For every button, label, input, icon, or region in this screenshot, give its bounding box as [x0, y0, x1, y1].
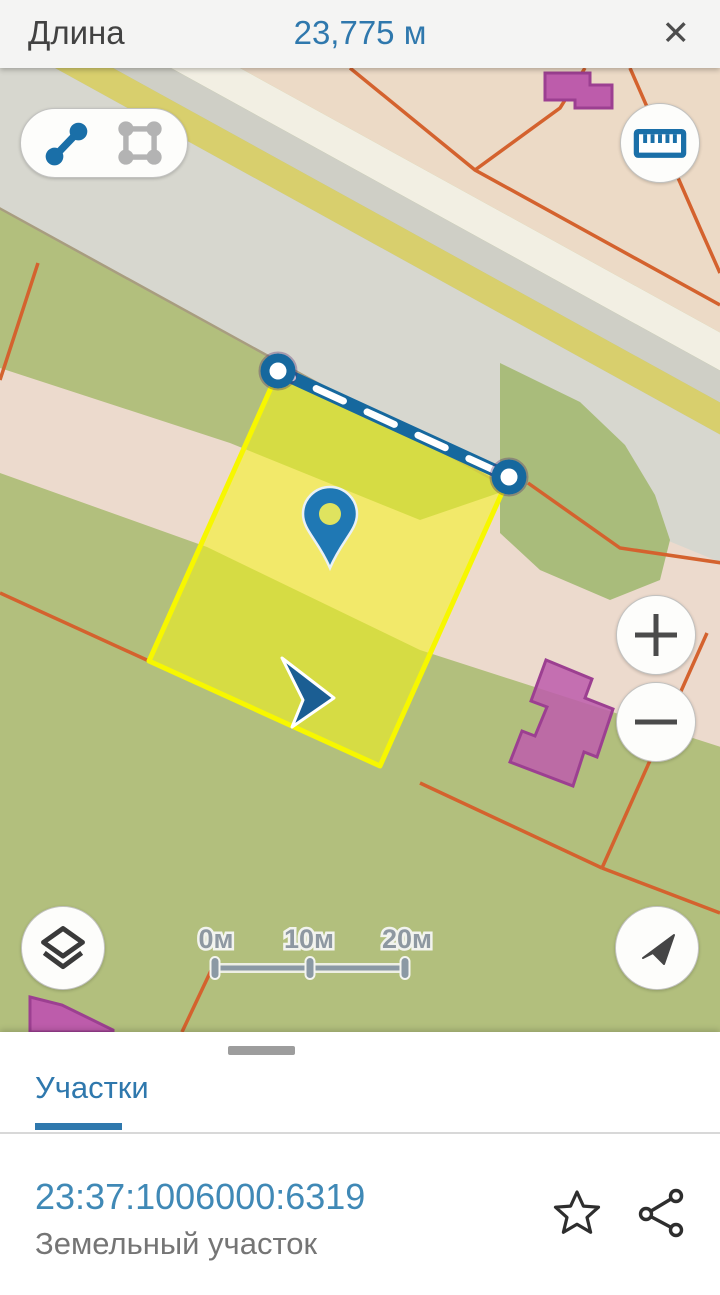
- measured-length-value: 23,775 м: [0, 14, 720, 52]
- tab-parcels[interactable]: Участки: [35, 1070, 149, 1106]
- measure-distance-icon[interactable]: [42, 118, 92, 168]
- layers-icon: [37, 922, 89, 974]
- ruler-icon: [632, 122, 688, 164]
- zoom-in-button[interactable]: [616, 595, 696, 675]
- measure-vertex-handle[interactable]: [265, 358, 291, 384]
- plus-icon: [631, 610, 681, 660]
- favorite-star-icon[interactable]: [552, 1188, 602, 1238]
- measure-area-icon[interactable]: [114, 117, 166, 169]
- layers-button[interactable]: [21, 906, 105, 990]
- parcel-cadastral-number-link[interactable]: 23:37:1006000:6319: [35, 1176, 365, 1218]
- close-icon[interactable]: ✕: [662, 16, 691, 50]
- share-icon[interactable]: [634, 1188, 686, 1238]
- divider: [0, 1132, 720, 1134]
- scale-label-0: 0м: [199, 924, 234, 954]
- navigation-arrow-icon: [631, 922, 683, 974]
- measure-app-bar: Длина 23,775 м ✕: [0, 0, 720, 68]
- compass-button[interactable]: [615, 906, 699, 990]
- app-screen: Длина 23,775 м ✕: [0, 0, 720, 1295]
- parcel-type-label: Земельный участок: [35, 1226, 317, 1262]
- drag-handle[interactable]: [228, 1046, 295, 1055]
- measure-tool-switcher: [20, 108, 188, 178]
- scale-label-20: 20м: [382, 924, 432, 954]
- measure-vertex-handle[interactable]: [496, 464, 522, 490]
- results-bottom-sheet: Участки 23:37:1006000:6319 Земельный уча…: [0, 1032, 720, 1295]
- minus-icon: [631, 697, 681, 747]
- zoom-out-button[interactable]: [616, 682, 696, 762]
- map-canvas[interactable]: 0м 10м 20м: [0, 68, 720, 1032]
- basemap: 0м 10м 20м: [0, 68, 720, 1032]
- scale-label-10: 10м: [284, 924, 334, 954]
- tab-active-indicator: [35, 1123, 122, 1130]
- ruler-button[interactable]: [620, 103, 700, 183]
